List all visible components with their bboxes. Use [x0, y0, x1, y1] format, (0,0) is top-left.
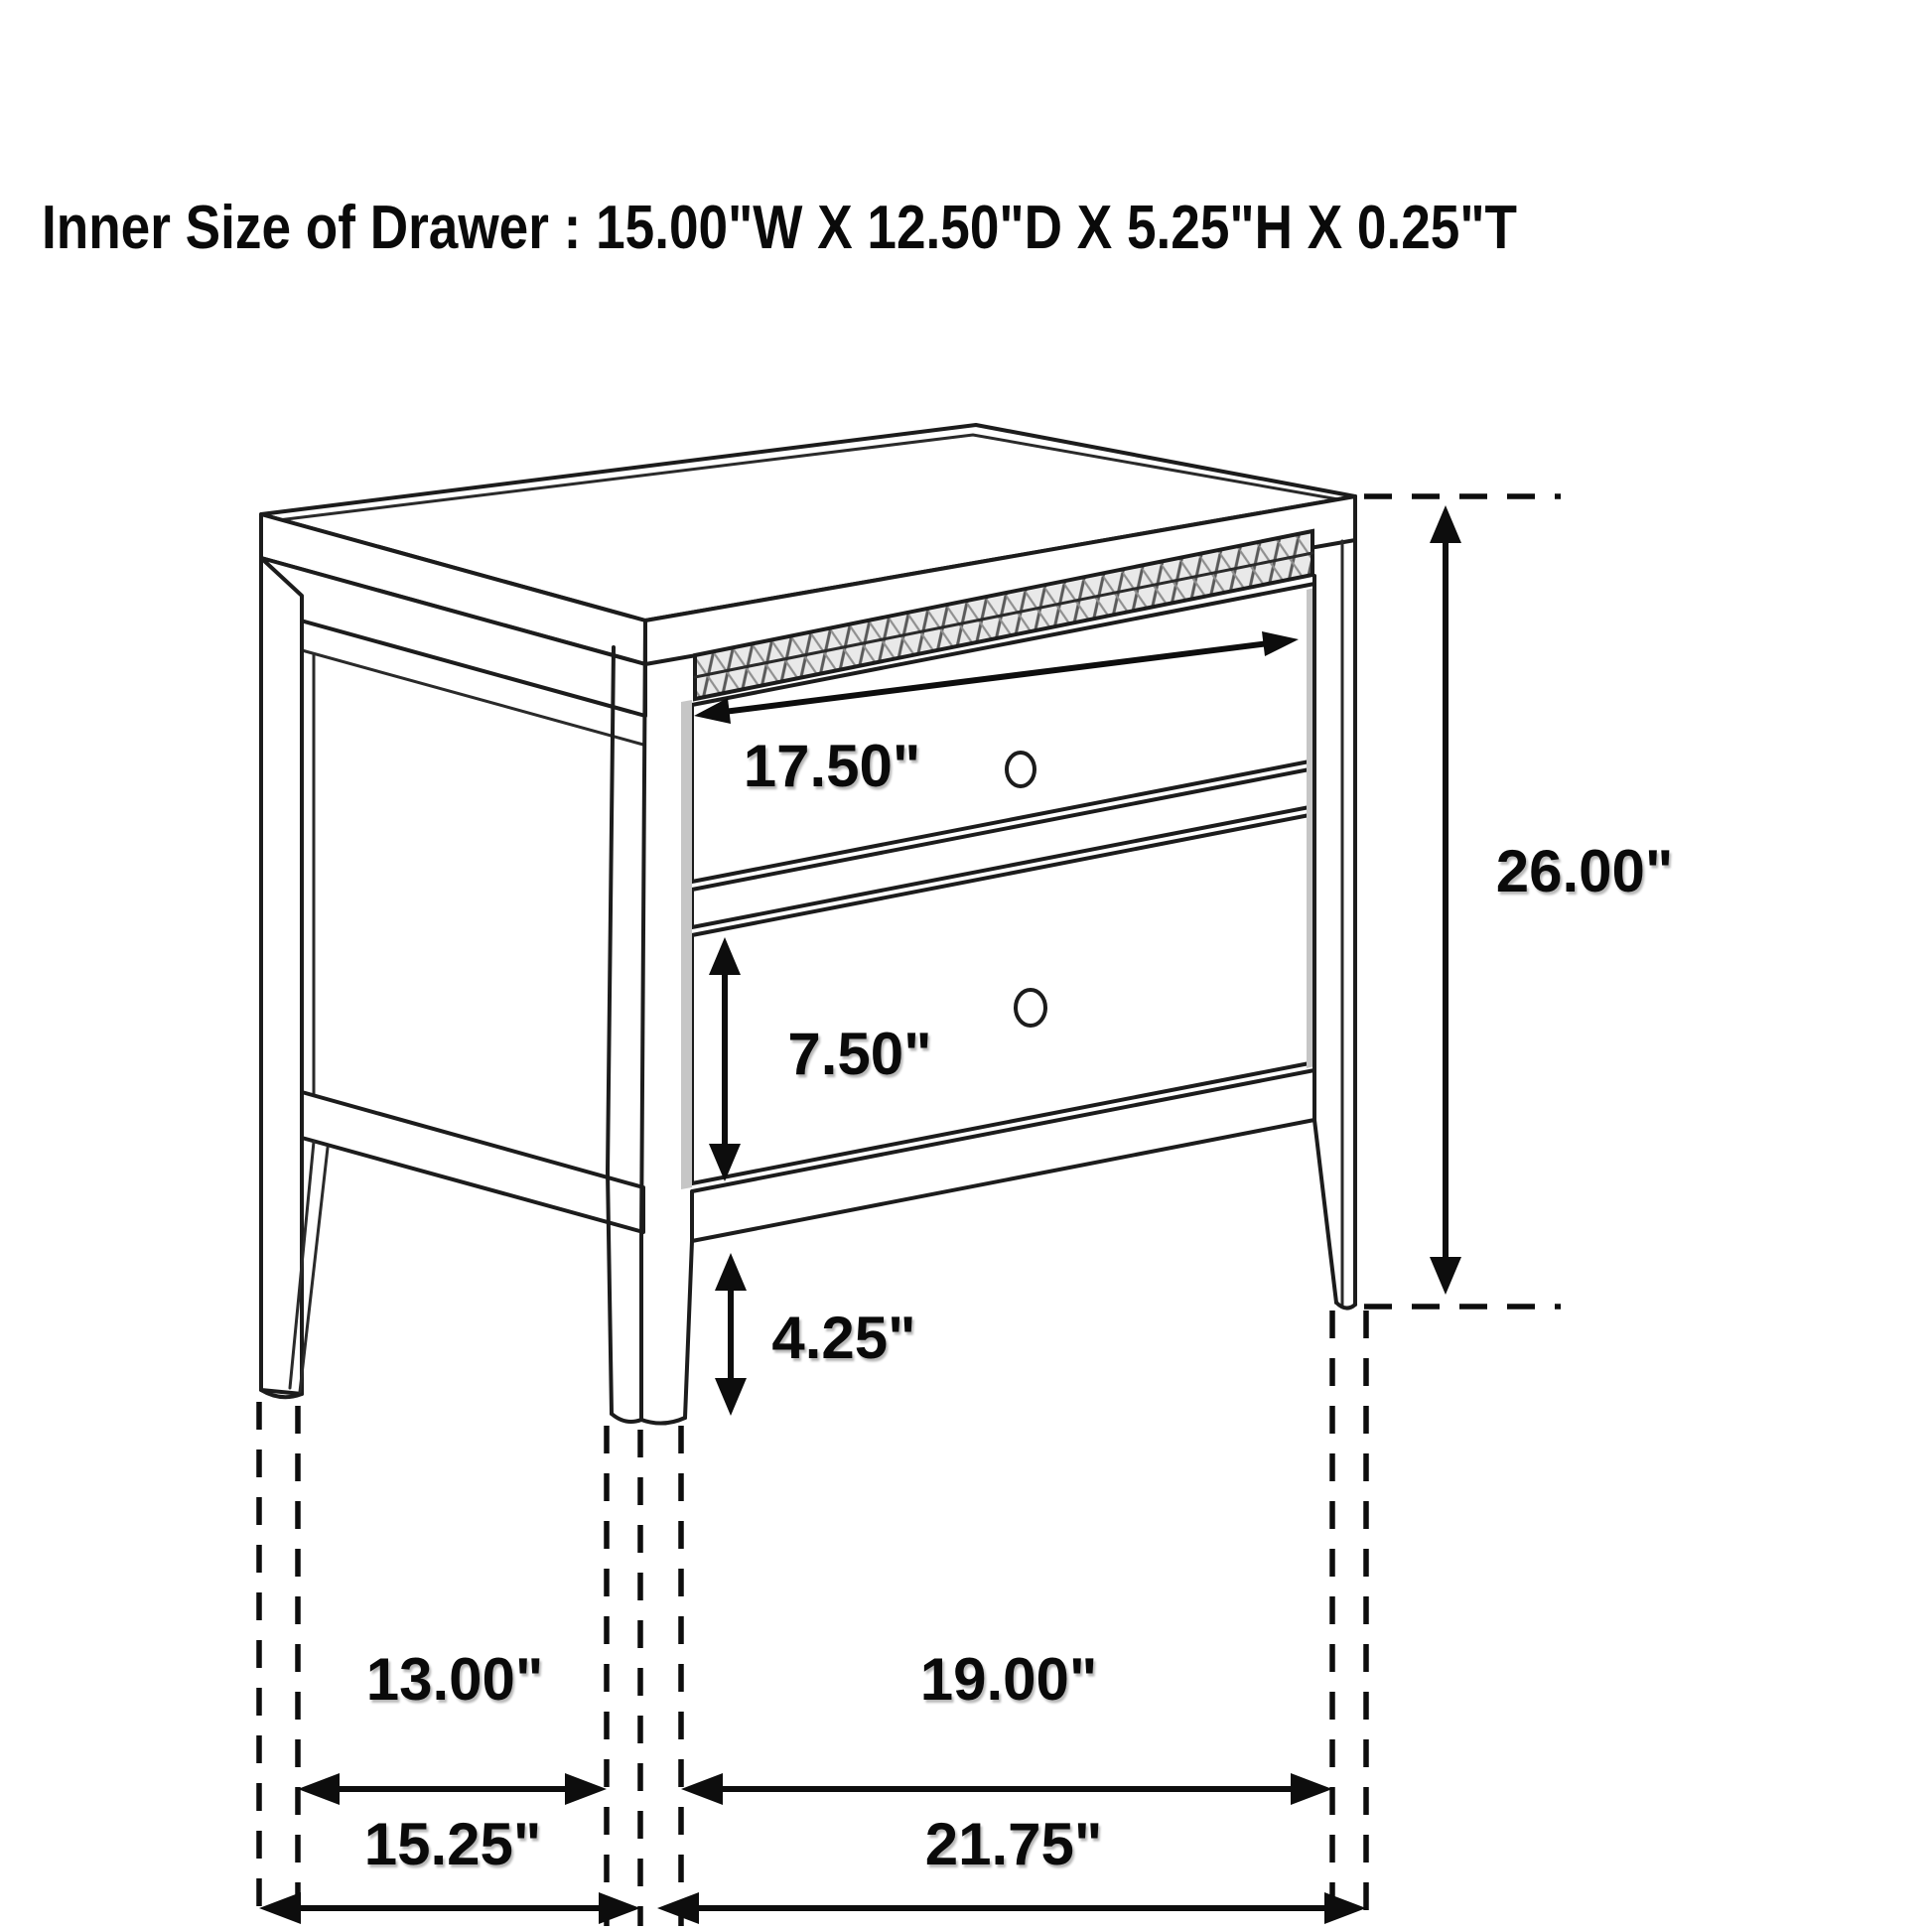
arrowhead-down-4-25	[715, 1378, 747, 1416]
arrowhead-down-26-00	[1430, 1257, 1461, 1295]
front-right-leg-foot	[1336, 1303, 1355, 1309]
dim-label-bottom-drawer-height: 7.50"	[787, 1021, 931, 1087]
arrowhead-left-15-25	[259, 1892, 301, 1924]
dim-label-front-overall-width: 21.75"	[925, 1811, 1103, 1877]
side-bottom-rail	[302, 1092, 643, 1232]
dim-side-inner-depth: 13.00"	[298, 1646, 607, 1805]
front-left-leg-front-edge	[685, 1241, 692, 1418]
dim-front-inner-width: 19.00"	[681, 1646, 1332, 1805]
arrowhead-up-26-00	[1430, 505, 1461, 543]
arrowhead-left-19-00	[681, 1773, 723, 1805]
dim-side-overall-depth: 15.25"	[259, 1811, 640, 1924]
dim-overall-height: 26.00"	[1364, 496, 1673, 1307]
back-left-leg-taper-outer	[300, 1148, 328, 1392]
dim-label-side-inner-depth: 13.00"	[366, 1646, 544, 1713]
dim-label-leg-height: 4.25"	[771, 1305, 915, 1371]
arrowhead-left-21-75	[657, 1892, 699, 1924]
diagram-page: Inner Size of Drawer : 15.00"W X 12.50"D…	[0, 0, 1932, 1932]
bottom-drawer-knob	[1016, 990, 1045, 1026]
dim-label-overall-height: 26.00"	[1496, 838, 1674, 904]
dim-label-front-inner-width: 19.00"	[920, 1646, 1098, 1713]
page-title: Inner Size of Drawer : 15.00"W X 12.50"D…	[42, 194, 1517, 262]
arrowhead-right-21-75	[1324, 1892, 1366, 1924]
arrowhead-right-19-00	[1291, 1773, 1332, 1805]
arrowhead-right-15-25	[599, 1892, 640, 1924]
back-left-leg	[261, 558, 302, 1394]
dim-label-top-drawer-width: 17.50"	[744, 733, 921, 799]
nightstand-dimension-diagram: Inner Size of Drawer : 15.00"W X 12.50"D…	[0, 0, 1932, 1932]
arrowhead-up-4-25	[715, 1253, 747, 1291]
dim-front-overall-width: 21.75"	[657, 1811, 1366, 1924]
nightstand-drawing	[261, 425, 1355, 1424]
front-left-leg-outer-edge	[608, 647, 614, 1414]
front-right-leg-taper	[1314, 1120, 1336, 1303]
dim-label-side-overall-depth: 15.25"	[364, 1811, 542, 1877]
dim-leg-height: 4.25"	[715, 1253, 916, 1416]
arrowhead-right-13-00	[565, 1773, 607, 1805]
left-drawer-reveal	[681, 700, 692, 1189]
front-left-corner-edge	[641, 621, 645, 1420]
arrowhead-left-13-00	[298, 1773, 340, 1805]
front-left-leg-foot	[612, 1414, 685, 1424]
top-drawer-knob	[1007, 753, 1035, 786]
